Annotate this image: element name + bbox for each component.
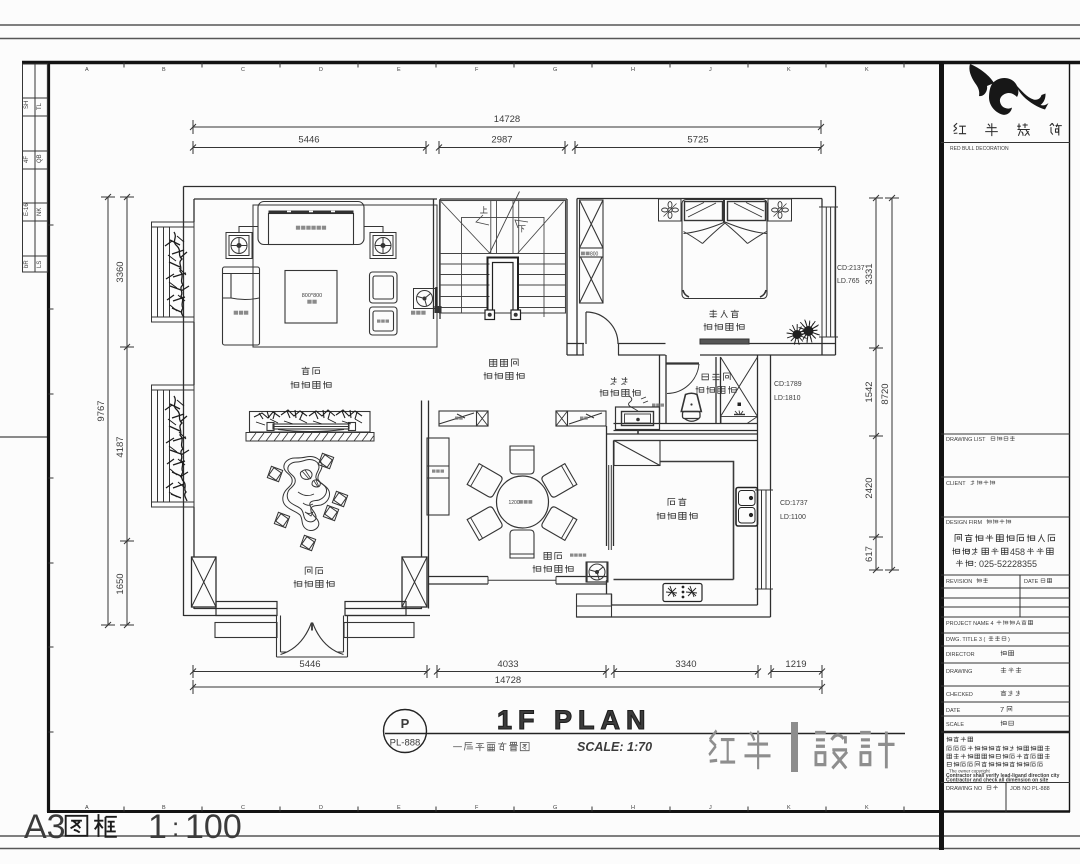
svg-text:REVISION: REVISION (946, 579, 972, 585)
svg-text:K: K (787, 805, 791, 811)
svg-text:E: E (397, 805, 401, 811)
svg-text:J: J (709, 67, 712, 73)
svg-text:458: 458 (1010, 547, 1025, 557)
svg-text:DIRECTOR: DIRECTOR (946, 652, 975, 658)
svg-text:SCALE: 1:70: SCALE: 1:70 (577, 740, 652, 754)
svg-text:3331: 3331 (864, 263, 875, 284)
svg-text:E-16: E-16 (24, 203, 30, 216)
svg-text::: : (967, 547, 970, 557)
svg-text:2420: 2420 (864, 477, 875, 498)
svg-text:A3: A3 (24, 808, 66, 846)
svg-text:H: H (631, 67, 635, 73)
svg-text:K: K (787, 67, 791, 73)
svg-text:TL: TL (37, 102, 43, 110)
svg-text:1542: 1542 (864, 381, 875, 402)
svg-text:A: A (85, 67, 89, 73)
svg-text:K: K (865, 805, 869, 811)
svg-text:E: E (397, 67, 401, 73)
svg-text:RED BULL DECORATION: RED BULL DECORATION (950, 146, 1009, 152)
svg-text:D: D (319, 67, 323, 73)
svg-text:K: K (865, 67, 869, 73)
svg-text:1219: 1219 (785, 659, 806, 670)
svg-text:DRAWING NO: DRAWING NO (946, 786, 983, 792)
svg-text:LD:1810: LD:1810 (774, 395, 801, 402)
svg-text:NK: NK (37, 208, 43, 216)
svg-text:QB: QB (37, 154, 43, 163)
svg-text:bR: bR (24, 260, 30, 268)
svg-text:2987: 2987 (491, 135, 512, 146)
svg-text:G: G (553, 67, 557, 73)
svg-text:CLIENT: CLIENT (946, 481, 966, 487)
svg-text:4F: 4F (24, 156, 30, 163)
svg-text:DESIGN FIRM: DESIGN FIRM (946, 520, 982, 526)
svg-text:J: J (709, 805, 712, 811)
svg-text:DRAWING: DRAWING (946, 669, 972, 675)
svg-text:5446: 5446 (298, 135, 319, 146)
svg-text:C: C (241, 67, 245, 73)
svg-text:DRAWING LIST: DRAWING LIST (946, 437, 986, 443)
svg-text:DATE: DATE (946, 708, 961, 714)
svg-text:P: P (401, 716, 410, 731)
svg-text:PROJECT NAME 4: PROJECT NAME 4 (946, 621, 994, 627)
svg-text:CD:1737: CD:1737 (780, 500, 808, 507)
svg-text:SH: SH (24, 101, 30, 109)
svg-text:G: G (553, 805, 557, 811)
svg-text:): ) (1008, 637, 1010, 643)
svg-text:617: 617 (864, 546, 875, 562)
svg-text:CD:2137: CD:2137 (837, 265, 865, 272)
svg-text:800*800: 800*800 (302, 293, 323, 299)
svg-text:4033: 4033 (497, 659, 518, 670)
svg-text:H: H (631, 805, 635, 811)
svg-text:14728: 14728 (495, 675, 521, 686)
svg-text::: : (172, 812, 179, 842)
svg-text:PL-888: PL-888 (390, 738, 421, 749)
svg-text:JOB NO PL-888: JOB NO PL-888 (1010, 786, 1050, 792)
svg-text:LD:1100: LD:1100 (780, 514, 806, 521)
svg-text:DATE: DATE (1024, 579, 1039, 585)
svg-text:B: B (162, 67, 166, 73)
svg-text:5725: 5725 (687, 135, 708, 146)
svg-text:LD.765: LD.765 (837, 278, 860, 285)
svg-text:7: 7 (1000, 705, 1004, 714)
svg-text:1: 1 (148, 808, 167, 846)
svg-text:1F PLAN: 1F PLAN (497, 705, 652, 735)
svg-text:9767: 9767 (96, 400, 107, 421)
svg-text:SCALE: SCALE (946, 722, 964, 728)
svg-text:A: A (85, 805, 89, 811)
svg-text:14728: 14728 (494, 114, 520, 125)
svg-text:A: A (1016, 620, 1021, 627)
svg-text:1200: 1200 (508, 500, 519, 506)
svg-text:DWG. TITLE 3 (: DWG. TITLE 3 ( (946, 637, 985, 643)
svg-text:5446: 5446 (299, 659, 320, 670)
svg-text:CD:1789: CD:1789 (774, 381, 802, 388)
svg-text:1650: 1650 (115, 573, 126, 594)
svg-text:4187: 4187 (115, 436, 126, 457)
svg-text:CHECKED: CHECKED (946, 692, 973, 698)
svg-text:3340: 3340 (675, 659, 696, 670)
svg-text:D: D (319, 805, 323, 811)
svg-text:: 025-52228355: : 025-52228355 (974, 559, 1037, 569)
svg-text:800: 800 (590, 252, 599, 258)
svg-text:LS: LS (37, 261, 43, 268)
svg-text:3360: 3360 (115, 261, 126, 282)
svg-text:100: 100 (185, 808, 242, 846)
svg-text:8720: 8720 (880, 383, 891, 404)
